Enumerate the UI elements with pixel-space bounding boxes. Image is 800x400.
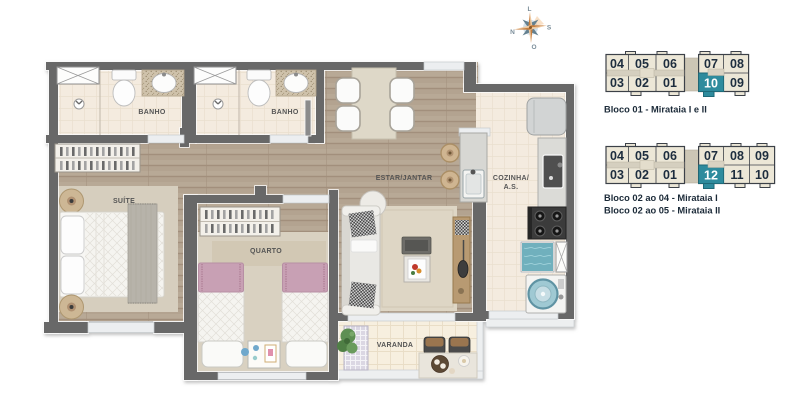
svg-text:06: 06 xyxy=(663,149,677,163)
svg-text:BANHO: BANHO xyxy=(138,109,165,116)
svg-text:02: 02 xyxy=(635,168,649,182)
svg-text:03: 03 xyxy=(610,76,624,90)
svg-text:09: 09 xyxy=(730,76,744,90)
svg-text:01: 01 xyxy=(663,76,677,90)
svg-text:06: 06 xyxy=(663,57,677,71)
svg-text:07: 07 xyxy=(704,57,718,71)
svg-text:05: 05 xyxy=(635,57,649,71)
svg-text:VARANDA: VARANDA xyxy=(377,342,414,349)
svg-text:08: 08 xyxy=(730,57,744,71)
svg-text:04: 04 xyxy=(610,149,624,163)
svg-text:L: L xyxy=(528,6,532,13)
svg-text:N: N xyxy=(510,29,515,36)
svg-text:Bloco 02 ao 05 - Mirataia II: Bloco 02 ao 05 - Mirataia II xyxy=(604,206,720,216)
svg-text:12: 12 xyxy=(704,169,718,183)
svg-text:QUARTO: QUARTO xyxy=(250,248,282,255)
svg-text:08: 08 xyxy=(730,149,744,163)
svg-text:A.S.: A.S. xyxy=(504,184,519,191)
svg-text:ESTAR/JANTAR: ESTAR/JANTAR xyxy=(376,175,433,182)
svg-text:Bloco 01 - Mirataia I e II: Bloco 01 - Mirataia I e II xyxy=(604,105,707,115)
svg-text:07: 07 xyxy=(704,149,718,163)
svg-text:S: S xyxy=(547,25,552,32)
svg-text:03: 03 xyxy=(610,168,624,182)
svg-text:O: O xyxy=(531,44,536,51)
svg-text:SUÍTE: SUÍTE xyxy=(113,196,135,205)
svg-text:11: 11 xyxy=(730,168,743,182)
svg-text:BANHO: BANHO xyxy=(271,109,298,116)
svg-text:02: 02 xyxy=(635,76,649,90)
svg-text:09: 09 xyxy=(755,149,769,163)
svg-text:10: 10 xyxy=(755,168,769,182)
svg-text:04: 04 xyxy=(610,57,624,71)
svg-text:01: 01 xyxy=(663,168,677,182)
svg-text:Bloco 02 ao 04 - Mirataia I: Bloco 02 ao 04 - Mirataia I xyxy=(604,193,718,203)
svg-text:10: 10 xyxy=(704,77,718,91)
svg-text:05: 05 xyxy=(635,149,649,163)
svg-text:COZINHA/: COZINHA/ xyxy=(493,175,529,182)
